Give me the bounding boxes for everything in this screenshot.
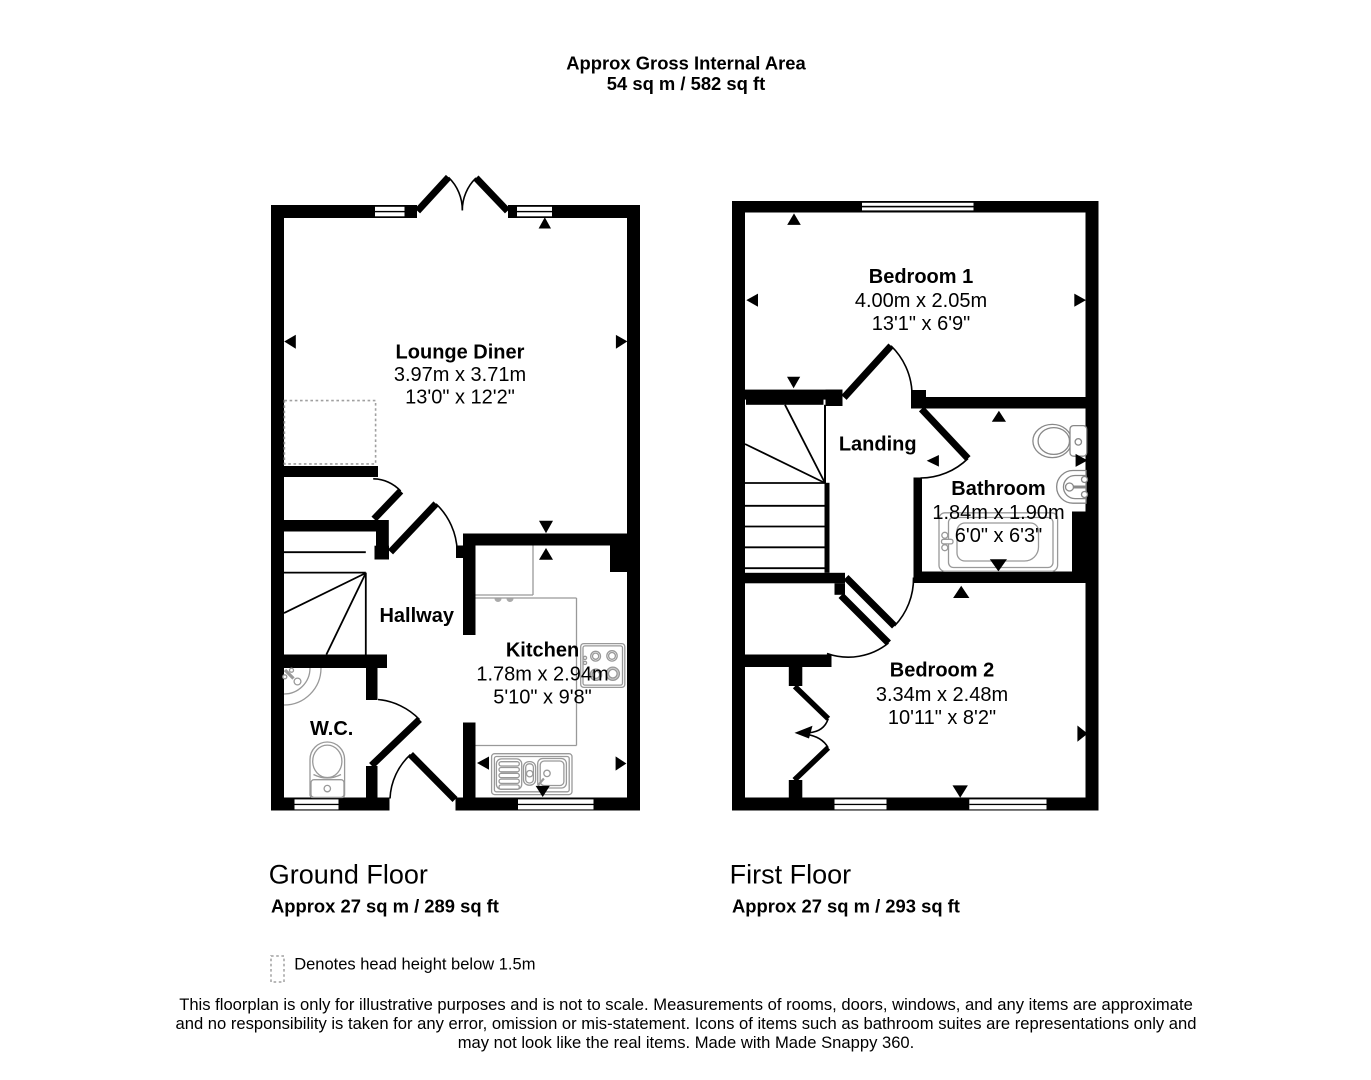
- svg-text:Approx 27 sq m / 289 sq ft: Approx 27 sq m / 289 sq ft: [271, 896, 499, 917]
- svg-text:First Floor: First Floor: [730, 860, 852, 890]
- svg-text:3.34m x 2.48m: 3.34m x 2.48m: [876, 684, 1008, 706]
- svg-text:6'0" x 6'3": 6'0" x 6'3": [955, 525, 1042, 547]
- svg-text:13'1" x 6'9": 13'1" x 6'9": [872, 313, 971, 335]
- svg-text:may not look like the real ite: may not look like the real items. Made w…: [458, 1033, 915, 1052]
- svg-text:10'11" x 8'2": 10'11" x 8'2": [888, 707, 996, 729]
- svg-text:Bedroom 1: Bedroom 1: [869, 266, 973, 288]
- svg-text:5'10" x 9'8": 5'10" x 9'8": [493, 686, 592, 708]
- svg-text:Hallway: Hallway: [379, 605, 454, 627]
- svg-text:1.84m x 1.90m: 1.84m x 1.90m: [932, 502, 1064, 524]
- svg-text:Ground Floor: Ground Floor: [269, 860, 428, 890]
- svg-text:W.C.: W.C.: [310, 718, 353, 740]
- svg-text:Lounge Diner: Lounge Diner: [396, 341, 525, 363]
- svg-text:54 sq m / 582 sq ft: 54 sq m / 582 sq ft: [607, 73, 765, 94]
- svg-text:Denotes head height below 1.5m: Denotes head height below 1.5m: [294, 956, 535, 974]
- svg-text:Approx 27 sq m / 293 sq ft: Approx 27 sq m / 293 sq ft: [732, 896, 960, 917]
- svg-text:Approx Gross Internal Area: Approx Gross Internal Area: [566, 52, 806, 73]
- svg-text:Bathroom: Bathroom: [951, 478, 1045, 500]
- svg-text:Bedroom 2: Bedroom 2: [890, 660, 994, 682]
- svg-text:13'0" x 12'2": 13'0" x 12'2": [405, 387, 515, 409]
- svg-text:This floorplan is only for ill: This floorplan is only for illustrative …: [179, 995, 1193, 1014]
- svg-text:1.78m x 2.94m: 1.78m x 2.94m: [476, 664, 608, 686]
- svg-text:Landing: Landing: [839, 434, 917, 456]
- svg-text:Kitchen: Kitchen: [506, 639, 579, 661]
- svg-text:and no responsibility is taken: and no responsibility is taken for any e…: [175, 1014, 1196, 1033]
- svg-text:3.97m x 3.71m: 3.97m x 3.71m: [394, 364, 526, 386]
- svg-text:4.00m x 2.05m: 4.00m x 2.05m: [855, 290, 987, 312]
